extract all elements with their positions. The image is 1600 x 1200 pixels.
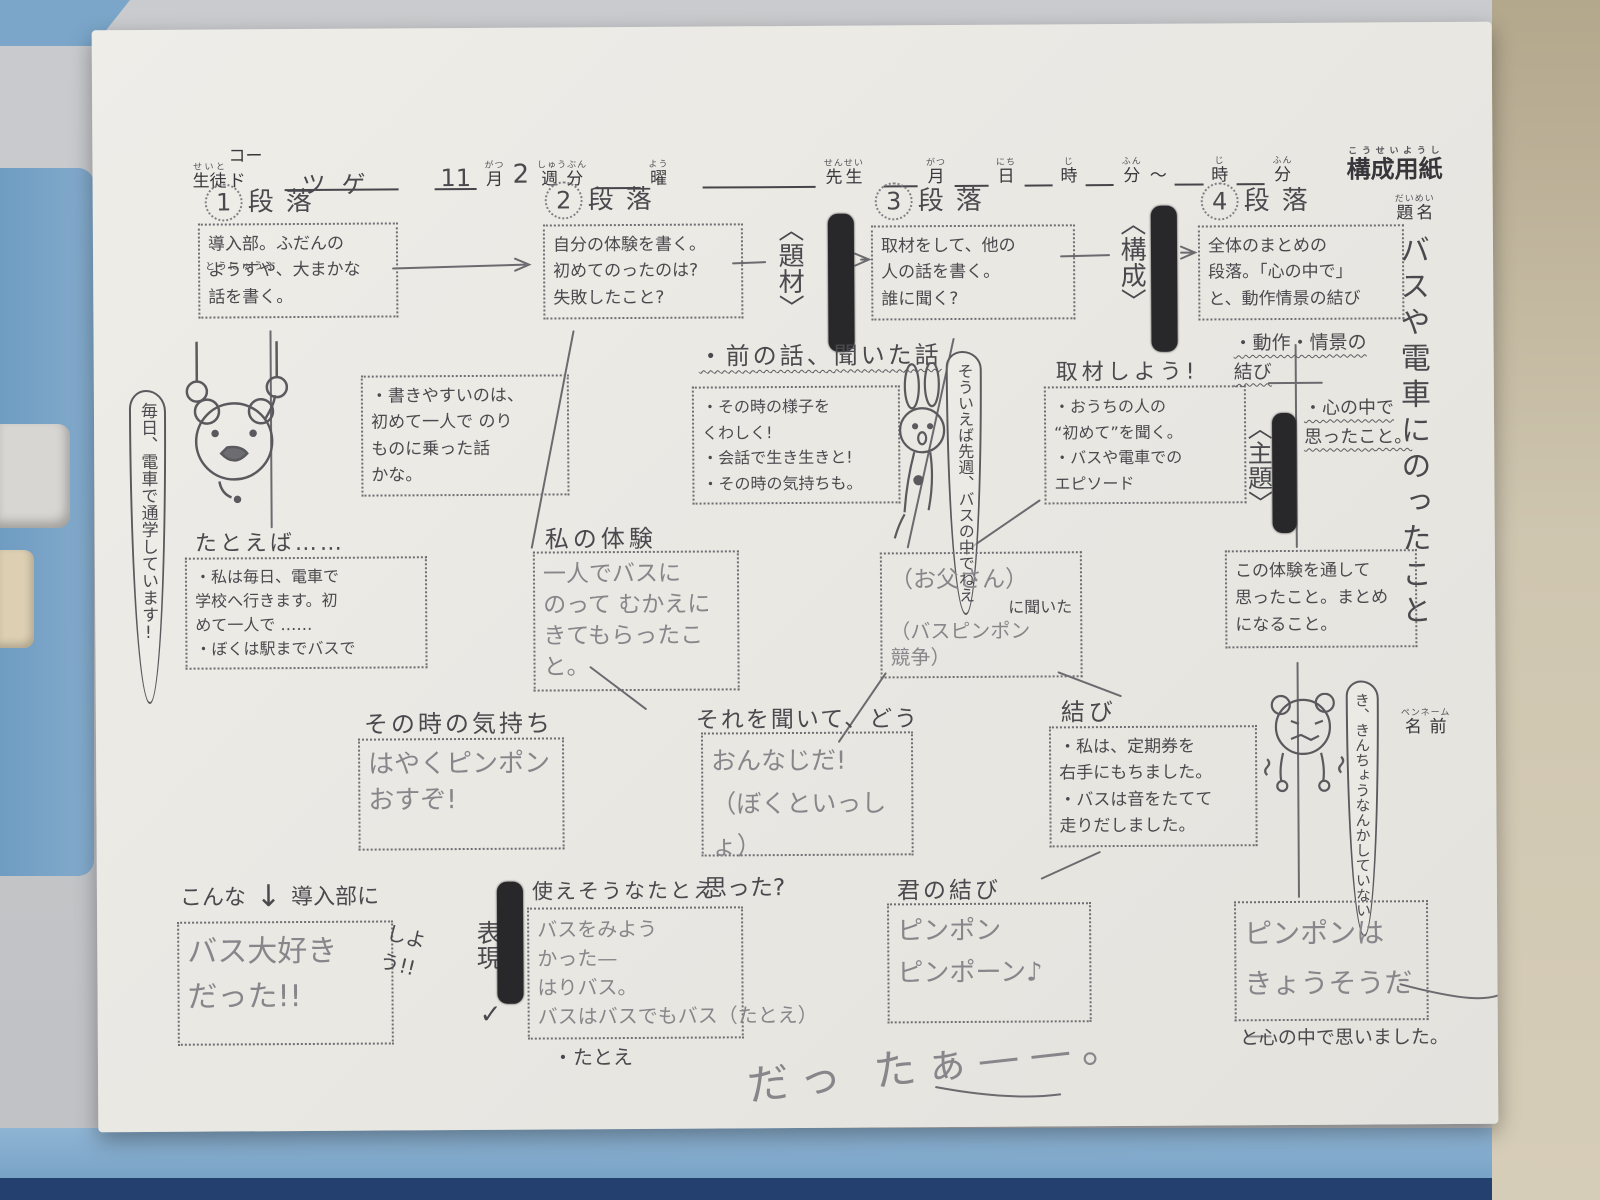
heard-from-box: （お父さん） に聞いた （バスピンポン 競争） — [880, 551, 1083, 678]
trembling-bear-drawing — [1261, 693, 1352, 804]
week-value: 2 — [512, 160, 529, 190]
heard-line1: （お父さん） — [890, 559, 1072, 594]
frog-speech-bubble: 毎日、電車で通学しています! — [129, 390, 168, 704]
intro-idea-box: バス大好き だった!! — [177, 920, 394, 1045]
your-musubi-box: ピンポン ピンポーン♪ — [887, 902, 1092, 1023]
tilde: ～ — [1150, 161, 1167, 186]
hyougen-marker-stroke — [497, 882, 524, 1004]
teacher-blank — [702, 162, 816, 189]
background-wall — [1492, 0, 1600, 1200]
hour2-blank — [1175, 159, 1204, 185]
month-value: 11 — [435, 164, 477, 190]
paragraph-3-number: 3 — [875, 182, 913, 220]
paragraph-2-label: 段落 — [588, 185, 664, 215]
paragraph-4-title: 4 段落 — [1201, 180, 1320, 221]
intro-down-arrow: ↓ — [256, 879, 281, 914]
how-thought-footer: 思った? — [704, 868, 785, 902]
heard-line3: （バスピンポン 競争） — [890, 617, 1072, 670]
feeling-heading: その時の気持ち — [364, 703, 553, 739]
heart-note: ・心の中で 思ったこと。 — [1304, 394, 1412, 452]
through-experience-box: この体験を通して 思ったこと。まとめ になること。 — [1225, 549, 1418, 648]
connector-kousei-label: 〈構成〉 — [1113, 210, 1151, 360]
clipboard-bottom-stripe — [0, 1178, 1600, 1200]
name-label: 名前ペンネーム — [1401, 708, 1451, 737]
title-label: 題名だいめい — [1395, 194, 1435, 223]
photo-of-composition-sheet: 生徒せいと コード ツゲ 11 月がつ 2 週分しゅうぶん 曜よう 先生せんせい… — [0, 0, 1600, 1200]
paragraph-3-box: 取材をして、他の 人の話を書く。 誰に聞く? — [871, 224, 1076, 320]
heard-line2: に聞いた — [890, 593, 1072, 618]
hour-label: 時じ — [1060, 157, 1077, 186]
intro-prefix: こんな — [180, 879, 246, 911]
hour-blank — [1024, 160, 1053, 186]
paragraph-4-label: 段落 — [1244, 186, 1320, 216]
paragraph-2-box: 自分の体験を書く。 初めてのったのは? 失敗したこと? — [543, 223, 744, 319]
my-experience-box: 一人でバスに のって むかえに きてもらったこと。 — [533, 550, 740, 691]
hyougen-checkmark: ✓ — [480, 1000, 502, 1030]
bear-speech-bubble: き、きんちょうなんかしていない — [1346, 680, 1381, 936]
musubi-heading: 結び — [1061, 692, 1117, 727]
action-ending-note: ・動作・情景の 結び — [1233, 329, 1366, 387]
example-heading: たとえば…… — [195, 525, 345, 558]
paragraph-2-number: 2 — [545, 181, 583, 219]
shudai-marker-stroke — [1272, 413, 1297, 533]
frog-on-train-straps-drawing — [149, 341, 330, 512]
paragraph-3-label: 段落 — [918, 186, 994, 216]
paragraph-1-furigana: とうにゅうぶ — [205, 257, 277, 272]
pinpon-ending-footer: と心の中で思いました。 — [1240, 1022, 1449, 1050]
clipboard-clip — [0, 424, 70, 528]
minute-label: 分ふん — [1122, 157, 1142, 186]
intro-suffix: 導入部に — [291, 879, 379, 912]
paragraph-4-number: 4 — [1201, 182, 1239, 220]
paragraph-1-label: 段落 — [248, 187, 324, 217]
paragraph-3-title: 3 段落 — [875, 180, 994, 221]
clipboard-small-clip — [0, 550, 34, 648]
musubi-box: ・私は、定期券を 右手にもちました。 ・バスは音をたてて 走りだしました。 — [1049, 725, 1258, 848]
teacher-label: 先生せんせい — [824, 159, 864, 188]
simile-footer: ・たとえ — [553, 1041, 633, 1070]
how-thought-box: おんなじだ! （ぼくといっしょ） — [701, 731, 914, 856]
daizai-marker-stroke — [828, 214, 855, 352]
sheet-title: 構成用紙こうせいようし — [1346, 146, 1442, 185]
simile-box: バスをみよう かった— はりバス。 バスはバスでもバス（たとえ） — [527, 906, 744, 1039]
date2-label: 日にち — [996, 158, 1016, 187]
intro-idea-heading: こんな ↓ 導入部に — [180, 879, 379, 915]
composition-sheet-paper: 生徒せいと コード ツゲ 11 月がつ 2 週分しゅうぶん 曜よう 先生せんせい… — [92, 22, 1499, 1133]
paragraph-1-number: 1 — [205, 183, 243, 221]
paragraph-2-title: 2 段落 — [545, 179, 664, 220]
how-thought-heading: それを聞いて、どう — [696, 699, 919, 734]
paragraph-1-title: 1 段落 — [205, 181, 324, 222]
kousei-marker-stroke — [1151, 206, 1178, 352]
my-experience-heading: 私の体験 — [545, 519, 657, 555]
feeling-box: はやくピンポン おすぞ! — [358, 737, 565, 850]
paragraph-4-box: 全体のまとめの 段落。「心の中で」 と、動作情景の結び — [1198, 224, 1405, 320]
pinpon-ending-box: ピンポンは きょうそうだ— — [1234, 900, 1429, 1021]
interview-box: ・おうちの人の “初めて”を聞く。 ・バスや電車での エピソード — [1044, 385, 1247, 505]
your-musubi-heading: 君の結び — [897, 871, 1001, 906]
example-box: ・私は毎日、電車で 学校へ行きます。初 めて一人で …… ・ぼくは駅までバスで — [185, 556, 428, 669]
easy-to-write-box: ・書きやすいのは、 初めて一人で のり ものに乗った話 かな。 — [361, 374, 570, 497]
minute-blank — [1085, 160, 1114, 186]
detail-box: ・その時の様子を くわしく! ・会話で生き生きと! ・その時の気持ちも。 — [692, 385, 901, 505]
simile-heading: 使えそうなたとえ — [532, 874, 716, 905]
month-label: 月がつ — [484, 161, 504, 190]
interview-heading: 取材しよう! — [1056, 354, 1199, 387]
